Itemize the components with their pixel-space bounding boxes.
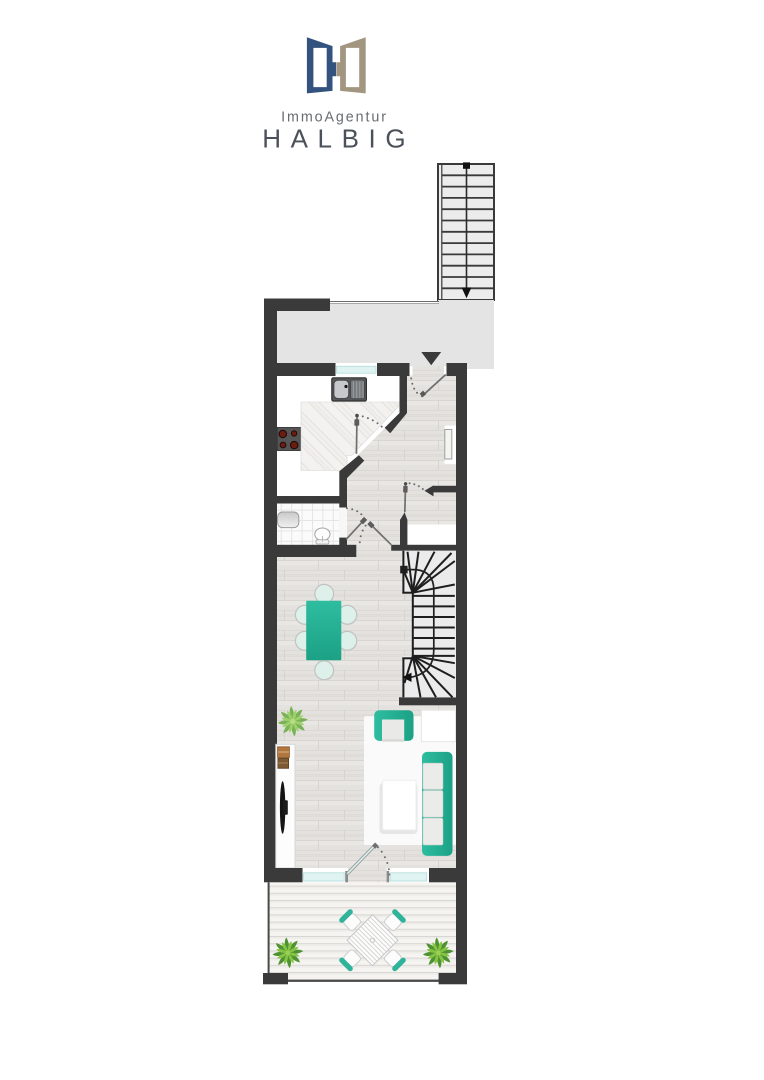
svg-text:HALBIG: HALBIG xyxy=(262,124,415,154)
